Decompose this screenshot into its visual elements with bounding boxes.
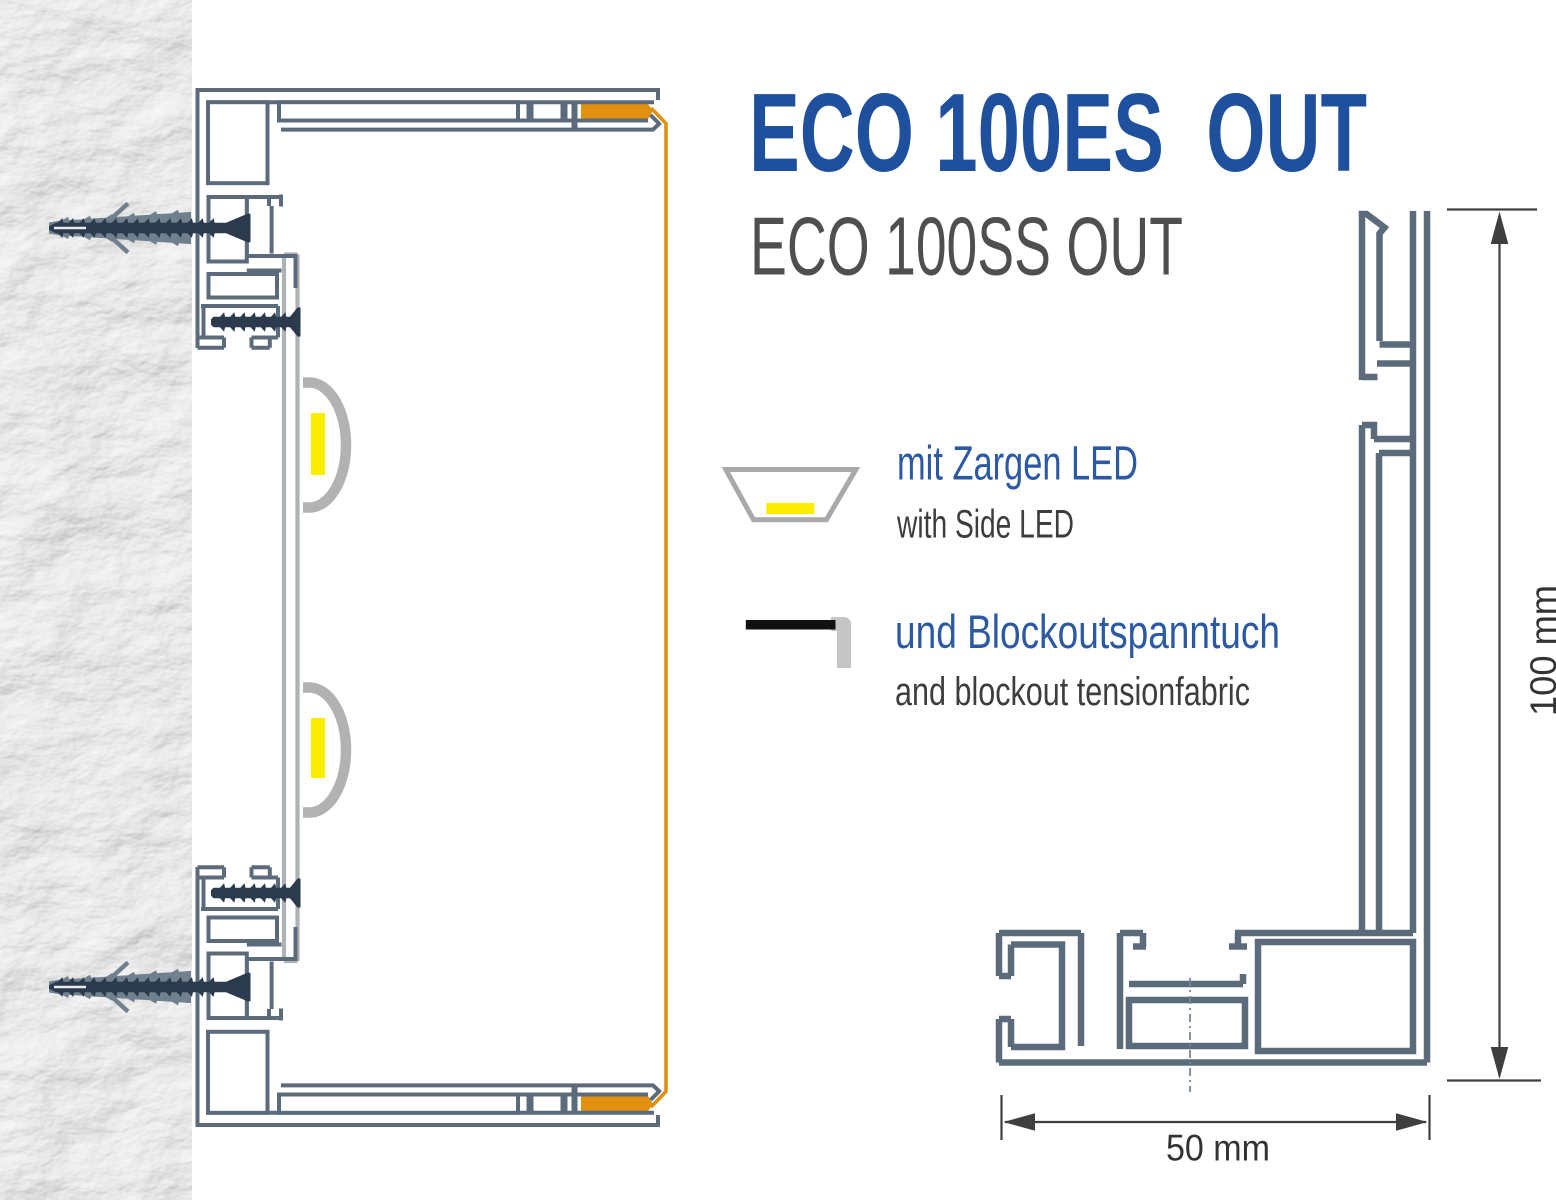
svg-text:50 mm: 50 mm xyxy=(1166,1128,1270,1169)
svg-text:mit Zargen LED: mit Zargen LED xyxy=(897,438,1138,491)
svg-text:and blockout tensionfabric: and blockout tensionfabric xyxy=(895,670,1250,714)
svg-text:ECO 100SS OUT: ECO 100SS OUT xyxy=(750,200,1183,293)
svg-text:ECO 100ES OUT: ECO 100ES OUT xyxy=(749,70,1367,195)
svg-text:with Side LED: with Side LED xyxy=(896,503,1074,547)
svg-text:100 mm: 100 mm xyxy=(1523,585,1556,716)
svg-text:und Blockoutspanntuch: und Blockoutspanntuch xyxy=(895,605,1280,658)
